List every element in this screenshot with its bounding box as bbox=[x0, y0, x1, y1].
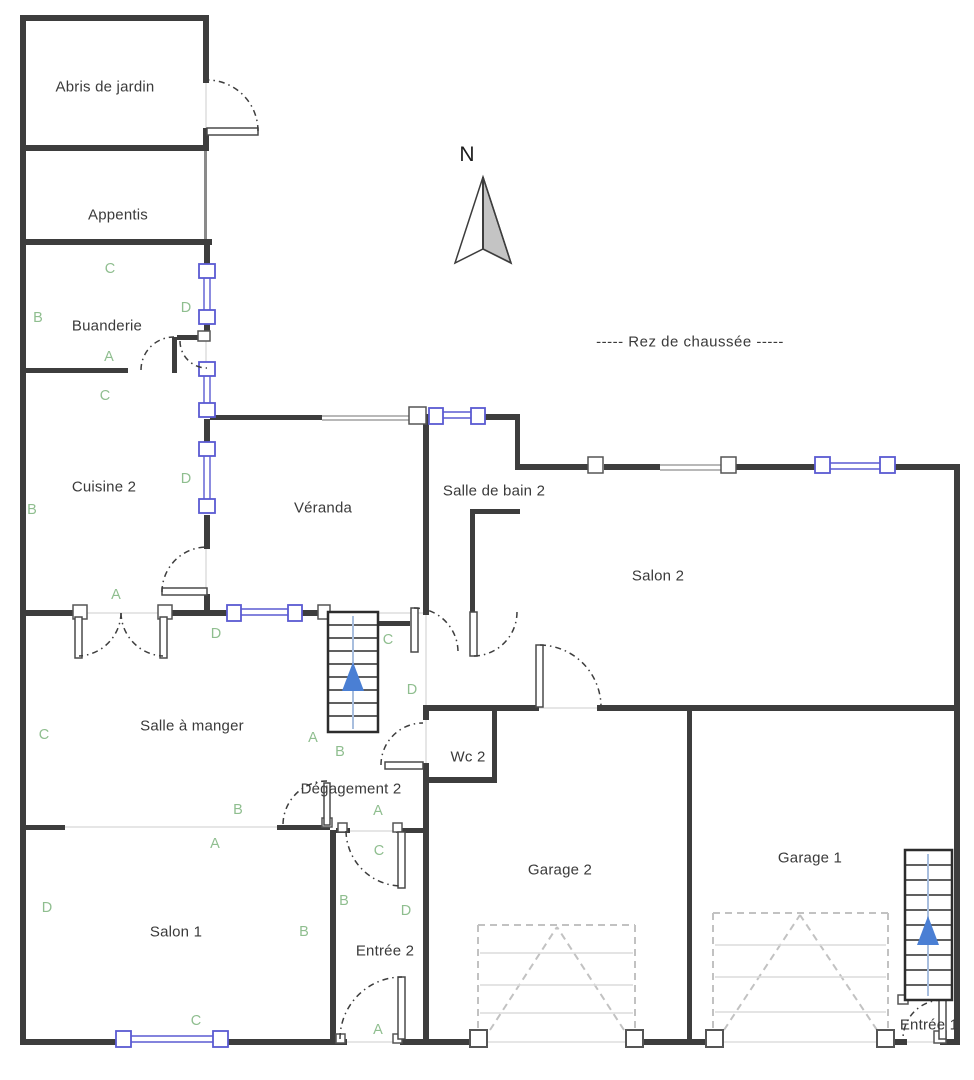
double-door-left-leaf bbox=[75, 617, 82, 658]
room-label-salon-1: Salon 1 bbox=[150, 924, 202, 941]
letter-marker: D bbox=[401, 903, 411, 919]
room-label-garage-1: Garage 1 bbox=[778, 850, 842, 867]
buanderie-left-door-arc bbox=[141, 337, 174, 370]
salon2-door-leaf bbox=[536, 645, 543, 707]
entree2-inner-door-leaf bbox=[398, 832, 405, 888]
letter-marker: A bbox=[308, 730, 318, 746]
garage-door-symbols bbox=[478, 913, 888, 1035]
wc2-door-leaf bbox=[385, 762, 423, 769]
entree2-front-door-leaf bbox=[398, 977, 405, 1039]
letter-marker: C bbox=[191, 1013, 201, 1029]
floor-plan: N ----- Rez de chaussée ----- Abris de j… bbox=[0, 0, 974, 1080]
staircase-entree1 bbox=[905, 850, 952, 1000]
room-label-entree-2: Entrée 2 bbox=[356, 943, 414, 960]
room-label-garage-2: Garage 2 bbox=[528, 862, 592, 879]
windows bbox=[116, 264, 895, 1047]
room-label-salle-a-manger: Salle à manger bbox=[140, 718, 244, 735]
north-arrow-icon bbox=[455, 177, 511, 263]
room-label-degagement-2: Dégagement 2 bbox=[301, 781, 402, 798]
room-label-wc-2: Wc 2 bbox=[451, 749, 486, 766]
abris-door-arc bbox=[207, 80, 258, 131]
room-label-salon-2: Salon 2 bbox=[632, 568, 684, 585]
floor-title: ----- Rez de chaussée ----- bbox=[596, 334, 784, 351]
letter-marker: C bbox=[374, 843, 384, 859]
entree2-front-door-arc bbox=[340, 977, 402, 1039]
wall-posts bbox=[73, 331, 946, 1047]
letter-marker: A bbox=[373, 803, 383, 819]
window-salon1 bbox=[116, 1031, 228, 1047]
room-label-abris-de-jardin: Abris de jardin bbox=[56, 79, 155, 96]
window-veranda bbox=[227, 605, 302, 621]
window-buanderie bbox=[199, 264, 215, 324]
letter-marker: D bbox=[181, 300, 191, 316]
letter-marker: C bbox=[100, 388, 110, 404]
abris-door-leaf bbox=[207, 128, 258, 135]
letter-marker: A bbox=[104, 349, 114, 365]
letter-marker: C bbox=[105, 261, 115, 277]
letter-marker: D bbox=[42, 900, 52, 916]
letter-marker: D bbox=[211, 626, 221, 642]
wc2-door-arc bbox=[381, 723, 423, 765]
letter-marker: B bbox=[339, 893, 349, 909]
floor-plan-drawing bbox=[0, 0, 974, 1080]
letter-marker: B bbox=[233, 802, 243, 818]
window-salle-de-bain bbox=[429, 408, 485, 424]
letter-marker: B bbox=[27, 502, 37, 518]
salon2-door-arc bbox=[540, 645, 601, 706]
stair-landing-door-arc bbox=[414, 608, 458, 652]
staircase-main bbox=[328, 612, 378, 732]
stair-landing-door-leaf bbox=[411, 608, 418, 652]
double-door-right-arc bbox=[121, 613, 163, 656]
letter-marker: A bbox=[373, 1022, 383, 1038]
letter-marker: A bbox=[210, 836, 220, 852]
window-cuisine-lower bbox=[199, 442, 215, 513]
room-label-buanderie: Buanderie bbox=[72, 318, 142, 335]
letter-marker: D bbox=[181, 471, 191, 487]
letter-marker: A bbox=[111, 587, 121, 603]
letter-marker: C bbox=[383, 632, 393, 648]
letter-marker: D bbox=[407, 682, 417, 698]
cuisine-veranda-door-arc bbox=[162, 547, 207, 592]
door-swing-arcs bbox=[79, 80, 942, 1039]
alcove-door-arc bbox=[473, 612, 517, 656]
room-label-entree-1: Entrée 1 bbox=[900, 1017, 958, 1034]
north-label: N bbox=[459, 143, 474, 167]
double-door-right-leaf bbox=[160, 617, 167, 658]
letter-marker: B bbox=[335, 744, 345, 760]
letter-marker: B bbox=[33, 310, 43, 326]
cuisine-veranda-door-leaf bbox=[162, 588, 207, 595]
window-salon2 bbox=[815, 457, 895, 473]
thin-wall-lines bbox=[322, 416, 736, 470]
room-label-veranda: Véranda bbox=[294, 500, 352, 517]
room-label-salle-de-bain-2: Salle de bain 2 bbox=[443, 483, 545, 500]
walls bbox=[20, 15, 960, 1045]
letter-marker: C bbox=[39, 727, 49, 743]
window-cuisine-upper bbox=[199, 362, 215, 417]
letter-marker: B bbox=[299, 924, 309, 940]
room-label-appentis: Appentis bbox=[88, 207, 148, 224]
alcove-door-leaf bbox=[470, 612, 477, 656]
room-label-cuisine-2: Cuisine 2 bbox=[72, 479, 136, 496]
